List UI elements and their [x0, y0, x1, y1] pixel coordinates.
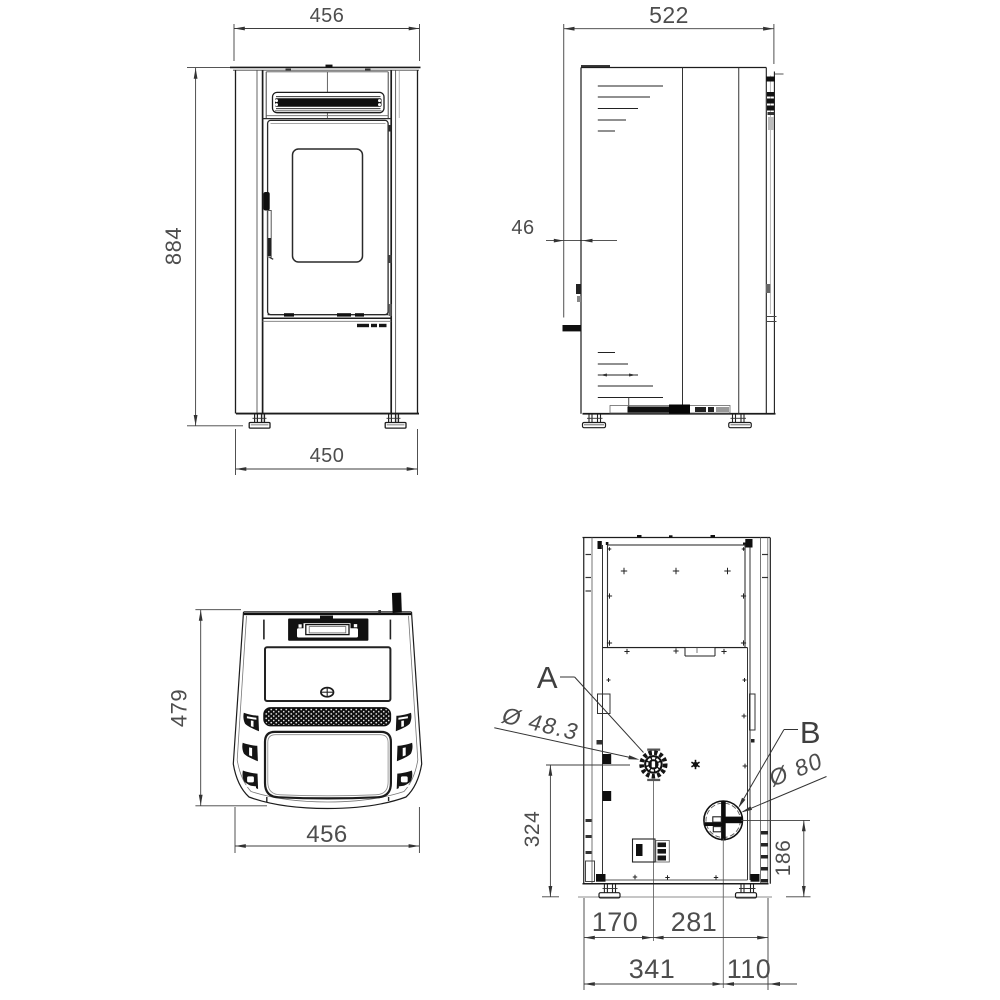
svg-text:456: 456: [306, 821, 348, 848]
svg-text:186: 186: [772, 840, 795, 877]
svg-text:522: 522: [649, 2, 689, 28]
svg-text:324: 324: [521, 811, 544, 848]
svg-text:B: B: [800, 715, 821, 750]
svg-text:110: 110: [727, 954, 772, 984]
svg-text:450: 450: [310, 445, 345, 467]
svg-text:281: 281: [671, 907, 718, 937]
svg-text:170: 170: [592, 907, 639, 937]
svg-text:479: 479: [167, 689, 192, 727]
svg-text:A: A: [537, 660, 558, 695]
svg-text:46: 46: [511, 217, 534, 239]
svg-text:456: 456: [310, 5, 345, 27]
svg-text:341: 341: [629, 954, 676, 984]
svg-text:884: 884: [161, 227, 186, 265]
